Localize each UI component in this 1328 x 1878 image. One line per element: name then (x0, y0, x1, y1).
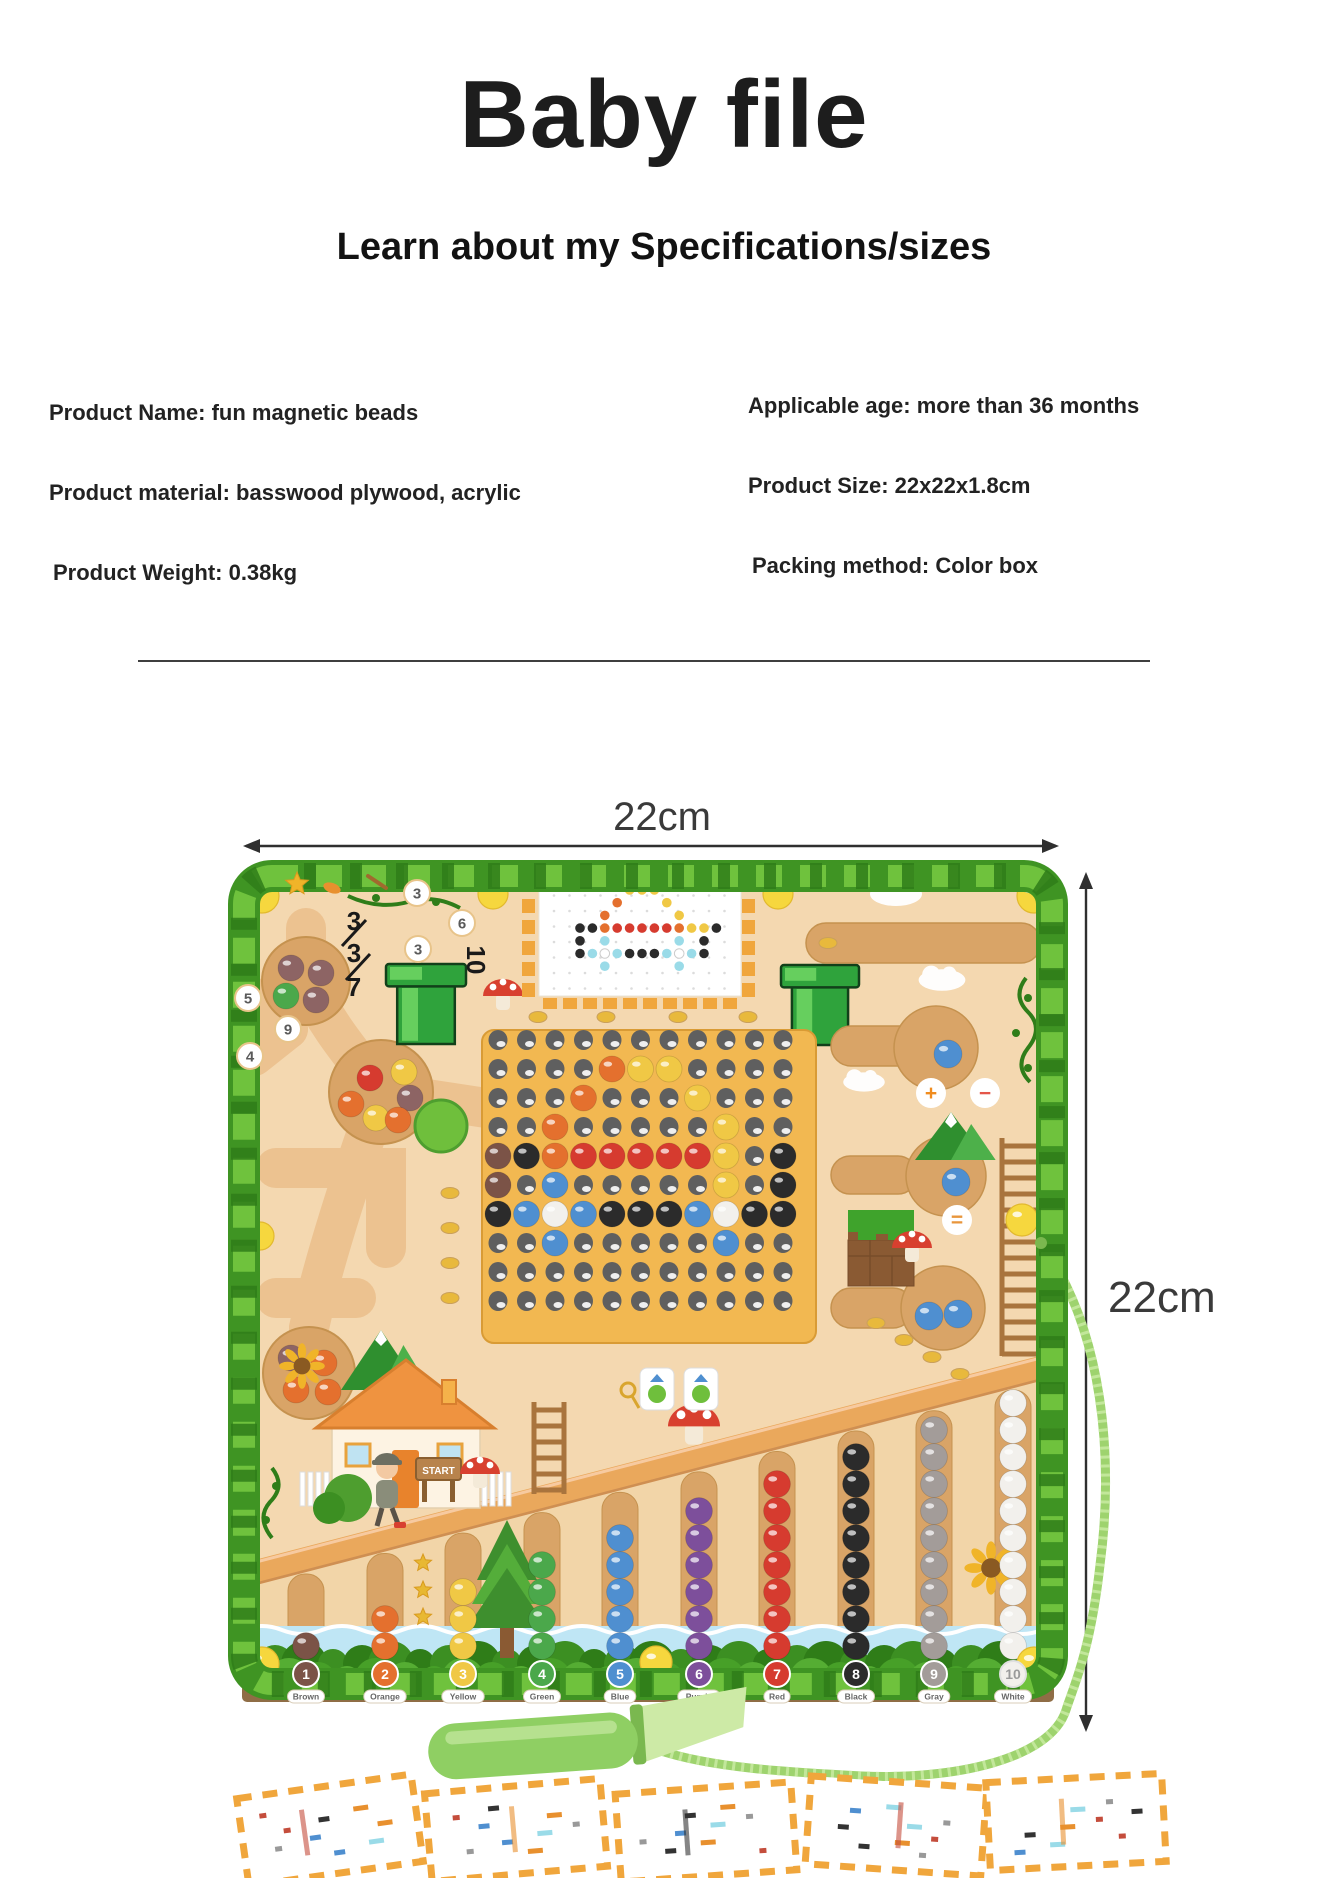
svg-text:Orange: Orange (370, 1692, 400, 1702)
svg-text:Red: Red (769, 1692, 785, 1702)
svg-text:3: 3 (414, 942, 422, 959)
activity-card (986, 1773, 1166, 1870)
product-photo: 22cm 22cm START+−=363594337101Brown2Oran… (0, 0, 1328, 1878)
svg-text:4: 4 (538, 1666, 546, 1682)
svg-text:5: 5 (616, 1666, 624, 1682)
svg-text:2: 2 (381, 1666, 389, 1682)
svg-text:White: White (1001, 1692, 1024, 1702)
svg-text:3: 3 (413, 886, 421, 903)
svg-text:9: 9 (284, 1022, 292, 1039)
start-sign-label: START (422, 1466, 455, 1477)
svg-text:Brown: Brown (293, 1692, 319, 1702)
svg-text:6: 6 (695, 1666, 703, 1682)
activity-card (425, 1778, 608, 1878)
height-dimension-label: 22cm (1108, 1273, 1216, 1322)
bush-mid (415, 1100, 467, 1152)
width-dimension-label: 22cm (613, 795, 711, 839)
svg-text:5: 5 (244, 991, 252, 1008)
product-spec-page: Baby file Learn about my Specifications/… (0, 0, 1328, 1878)
svg-text:Blue: Blue (611, 1692, 630, 1702)
svg-text:9: 9 (930, 1666, 938, 1682)
svg-text:Black: Black (845, 1692, 868, 1702)
maze-board: START+−=363594337101Brown2Orange3Yellow4… (231, 868, 1077, 1703)
svg-text:Yellow: Yellow (450, 1692, 477, 1702)
cord-knot (1035, 1237, 1047, 1249)
svg-text:10: 10 (461, 946, 491, 975)
svg-text:6: 6 (458, 916, 466, 933)
svg-text:Gray: Gray (924, 1692, 944, 1702)
pegboard (482, 1030, 816, 1343)
svg-text:3: 3 (459, 1666, 467, 1682)
svg-text:4: 4 (246, 1049, 255, 1066)
svg-text:+: + (925, 1082, 937, 1105)
activity-cards (237, 1773, 1166, 1878)
activity-card (805, 1776, 987, 1876)
pipe (386, 964, 466, 1044)
width-dimension-arrow (243, 839, 1059, 853)
svg-text:−: − (979, 1082, 991, 1105)
svg-text:3: 3 (347, 938, 361, 968)
svg-text:1: 1 (302, 1666, 310, 1682)
svg-text:7: 7 (773, 1666, 781, 1682)
svg-text:8: 8 (852, 1666, 860, 1682)
activity-card (237, 1774, 424, 1878)
activity-card (615, 1782, 797, 1878)
svg-text:Green: Green (530, 1692, 555, 1702)
svg-text:10: 10 (1005, 1666, 1021, 1682)
svg-text:=: = (951, 1209, 963, 1232)
